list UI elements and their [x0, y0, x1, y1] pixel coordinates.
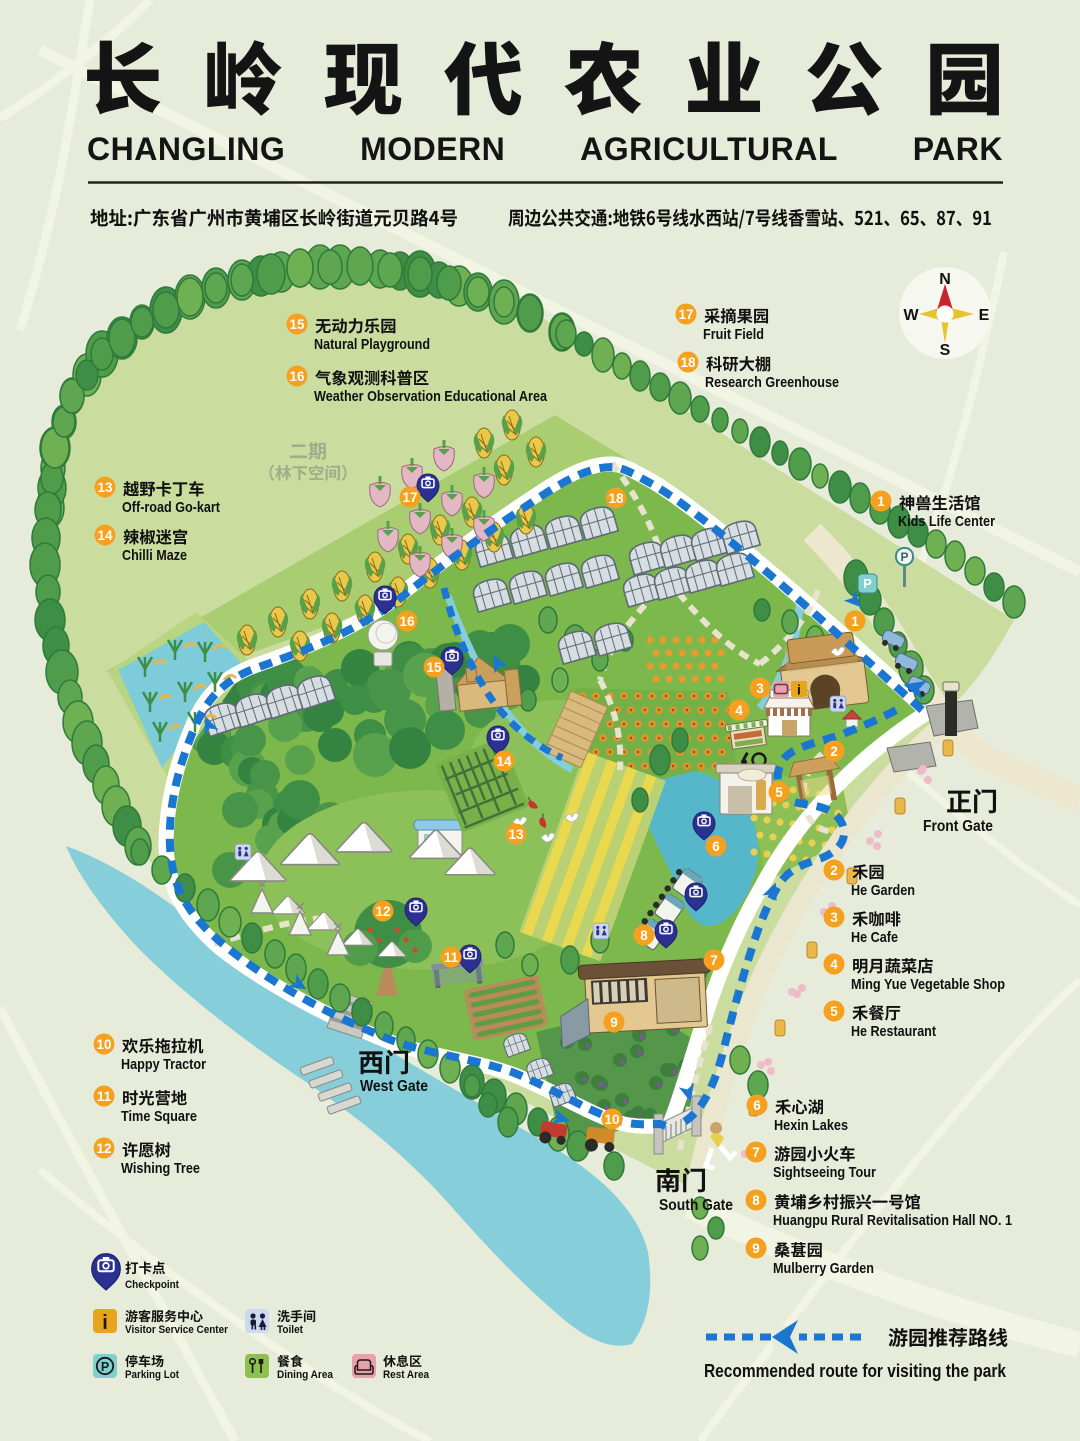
svg-text:Front Gate: Front Gate [923, 818, 993, 835]
svg-text:16: 16 [289, 369, 305, 384]
svg-text:P: P [900, 550, 908, 564]
svg-text:17: 17 [678, 307, 693, 322]
svg-text:P: P [101, 1360, 109, 1374]
svg-text:Off-road Go-kart: Off-road Go-kart [122, 499, 220, 516]
svg-text:9: 9 [610, 1015, 618, 1030]
svg-text:5: 5 [830, 1004, 838, 1019]
svg-text:3: 3 [830, 910, 838, 925]
svg-text:West Gate: West Gate [360, 1078, 428, 1095]
svg-text:8: 8 [640, 928, 648, 943]
svg-text:Fruit Field: Fruit Field [703, 326, 764, 343]
svg-text:11: 11 [444, 950, 459, 965]
svg-text:Visitor Service Center: Visitor Service Center [125, 1324, 229, 1336]
svg-text:14: 14 [97, 528, 113, 543]
svg-text:2: 2 [830, 744, 838, 759]
svg-text:14: 14 [496, 754, 512, 769]
svg-text:13: 13 [97, 480, 113, 495]
svg-text:Hexin Lakes: Hexin Lakes [774, 1117, 848, 1134]
svg-text:P: P [863, 576, 872, 591]
svg-text:Mulberry Garden: Mulberry Garden [773, 1260, 874, 1277]
svg-text:Chilli Maze: Chilli Maze [122, 547, 187, 564]
svg-text:6: 6 [753, 1098, 761, 1113]
svg-text:Happy Tractor: Happy Tractor [121, 1056, 206, 1073]
svg-text:Research Greenhouse: Research Greenhouse [705, 374, 839, 391]
svg-text:He Garden: He Garden [851, 882, 915, 899]
svg-text:Recommended route for visiting: Recommended route for visiting the park [704, 1361, 1007, 1381]
svg-text:Kids Life Center: Kids Life Center [898, 513, 995, 530]
svg-text:15: 15 [426, 660, 442, 675]
svg-text:E: E [979, 307, 990, 324]
svg-text:Checkpoint: Checkpoint [125, 1279, 179, 1291]
svg-text:1: 1 [877, 494, 885, 509]
svg-text:11: 11 [97, 1089, 112, 1104]
svg-text:Sightseeing Tour: Sightseeing Tour [773, 1164, 876, 1181]
svg-text:i: i [102, 1312, 108, 1334]
svg-text:7: 7 [710, 953, 718, 968]
svg-text:12: 12 [375, 904, 390, 919]
svg-text:1: 1 [851, 614, 859, 629]
svg-text:i: i [797, 682, 801, 698]
svg-text:Ming Yue Vegetable Shop: Ming Yue Vegetable Shop [851, 976, 1005, 993]
svg-text:Time Square: Time Square [121, 1108, 197, 1125]
svg-text:3: 3 [756, 681, 764, 696]
svg-text:10: 10 [604, 1112, 619, 1127]
svg-text:13: 13 [508, 827, 524, 842]
svg-text:18: 18 [680, 355, 696, 370]
svg-text:Weather Observation Educationa: Weather Observation Educational Area [314, 388, 548, 405]
svg-text:17: 17 [402, 490, 417, 505]
svg-text:18: 18 [608, 491, 624, 506]
svg-text:Wishing Tree: Wishing Tree [121, 1160, 200, 1177]
svg-text:12: 12 [96, 1141, 111, 1156]
svg-text:15: 15 [289, 317, 305, 332]
svg-text:10: 10 [96, 1037, 111, 1052]
svg-text:Dining Area: Dining Area [277, 1369, 334, 1381]
svg-text:7: 7 [752, 1145, 760, 1160]
svg-text:8: 8 [752, 1193, 760, 1208]
svg-text:W: W [903, 307, 919, 324]
svg-text:Huangpu Rural Revitalisation H: Huangpu Rural Revitalisation Hall NO. 1 [773, 1212, 1012, 1229]
svg-text:9: 9 [752, 1241, 760, 1256]
svg-text:5: 5 [775, 785, 783, 800]
svg-text:16: 16 [399, 614, 415, 629]
svg-text:He Restaurant: He Restaurant [851, 1023, 936, 1040]
svg-text:4: 4 [830, 957, 838, 972]
svg-text:2: 2 [830, 863, 838, 878]
svg-text:4: 4 [735, 703, 743, 718]
svg-text:Toilet: Toilet [277, 1324, 303, 1336]
svg-text:6: 6 [712, 839, 720, 854]
svg-text:Parking Lot: Parking Lot [125, 1369, 179, 1381]
svg-text:Natural Playground: Natural Playground [314, 336, 430, 353]
svg-text:He Cafe: He Cafe [851, 929, 898, 946]
svg-text:N: N [939, 271, 951, 288]
svg-text:South Gate: South Gate [659, 1197, 733, 1214]
svg-text:S: S [940, 342, 951, 359]
svg-text:Rest Area: Rest Area [383, 1369, 430, 1381]
